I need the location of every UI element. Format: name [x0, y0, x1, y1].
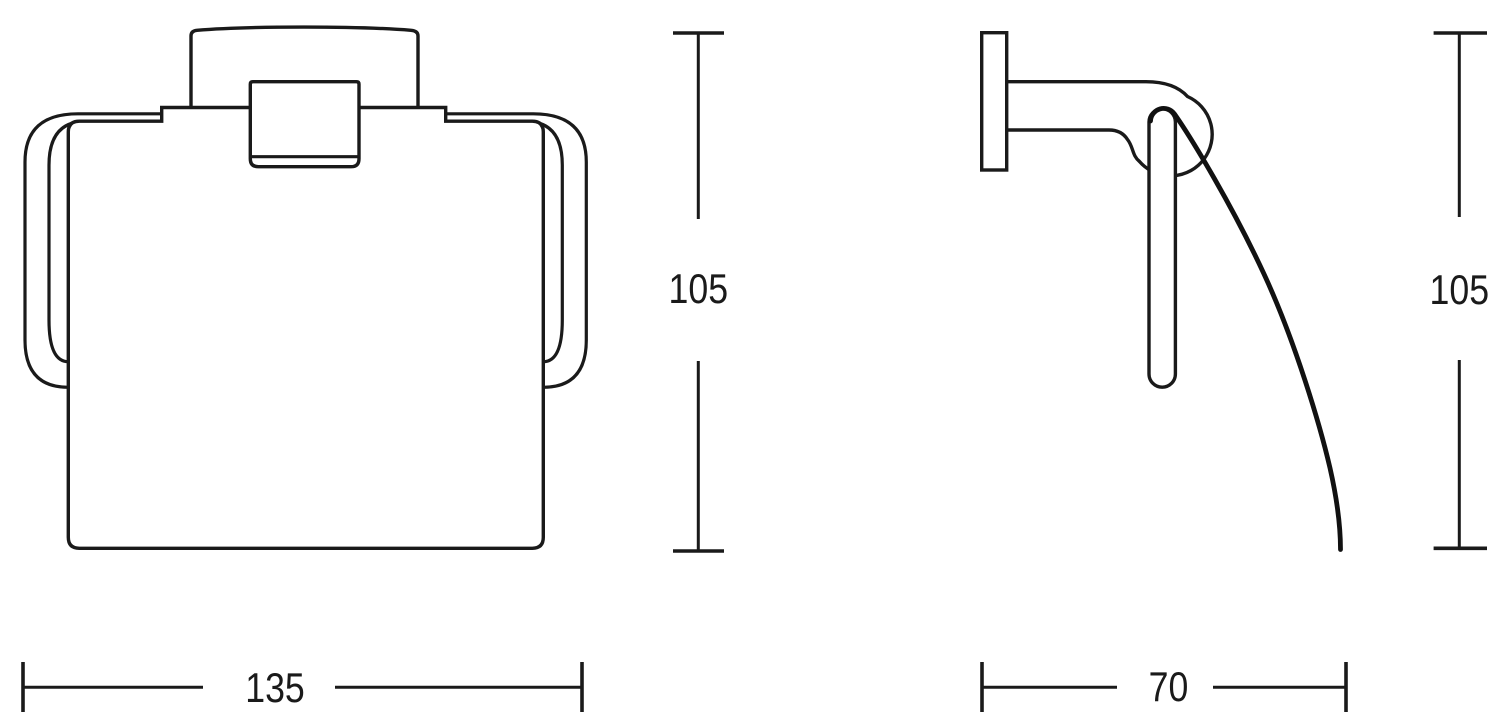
front-cover-body — [68, 108, 543, 549]
front-latch-flap — [250, 82, 359, 167]
dimension-label-front-height: 105 — [669, 266, 729, 312]
dimension-front-height: 105 — [669, 33, 729, 551]
side-roll-bar — [1149, 109, 1175, 387]
dimension-label-front-width: 135 — [245, 665, 305, 711]
toilet-roll-holder-drawing: 105 135 105 70 — [0, 0, 1500, 712]
dimension-side-depth: 70 — [982, 662, 1346, 712]
dimension-front-width: 135 — [23, 662, 582, 712]
side-wall-plate — [982, 33, 1007, 170]
side-view — [982, 33, 1341, 550]
dimension-label-side-height: 105 — [1430, 267, 1490, 313]
dimension-side-height: 105 — [1430, 33, 1490, 548]
technical-drawing-canvas: 105 135 105 70 — [0, 0, 1500, 712]
front-view — [25, 27, 586, 548]
dimension-label-side-depth: 70 — [1149, 664, 1189, 710]
side-bracket-arm — [1007, 82, 1212, 176]
